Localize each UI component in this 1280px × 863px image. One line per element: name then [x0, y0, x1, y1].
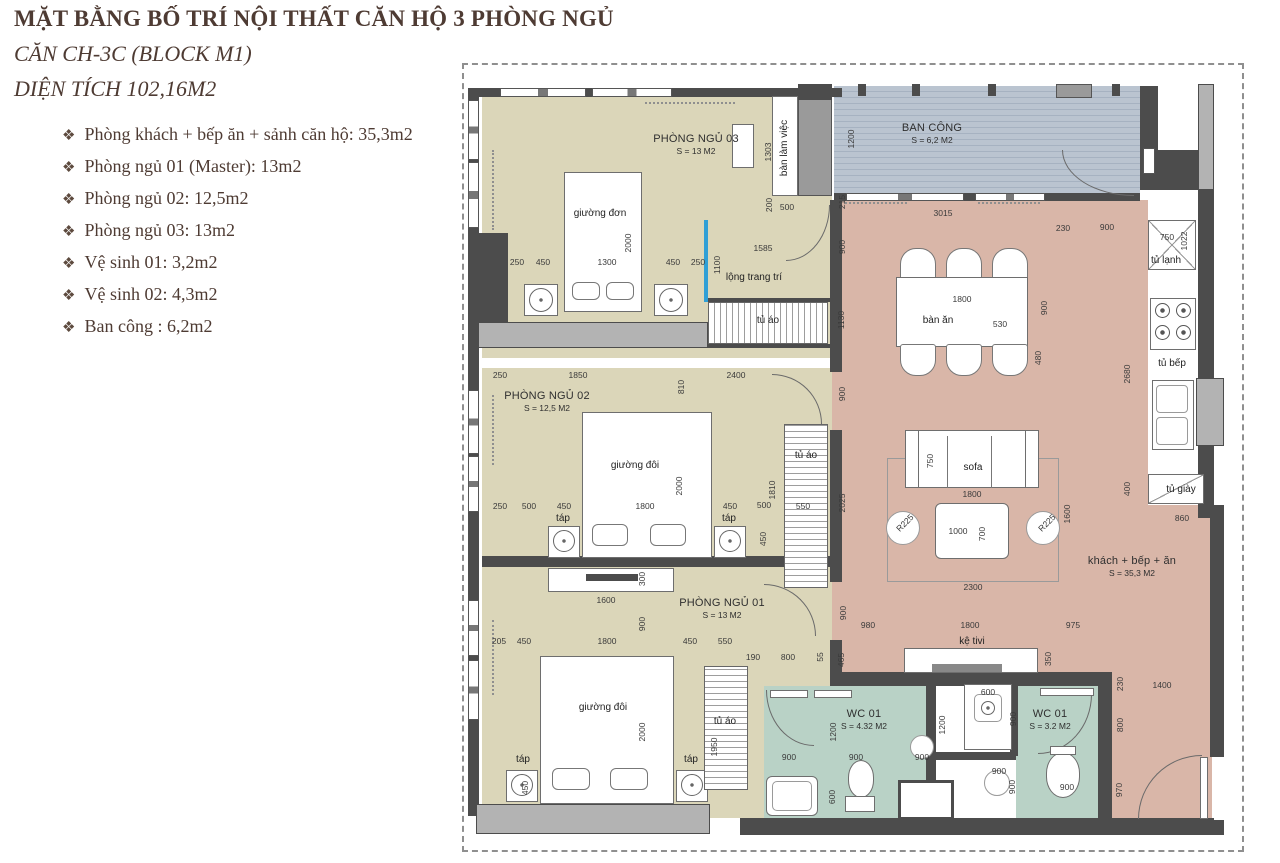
dimension-label: 250 [510, 258, 524, 267]
dimension-label: 900 [839, 606, 848, 620]
pillow [592, 524, 628, 546]
dimension-label: 450 [723, 502, 737, 511]
dimension-label: 1130 [837, 311, 846, 329]
wall-slab [476, 804, 710, 834]
furniture-label: giường đôi [611, 461, 659, 471]
furniture-label: táp [516, 755, 530, 765]
dimension-label: 2000 [624, 234, 633, 253]
coffee-table [935, 503, 1009, 559]
dimension-label: 480 [1034, 351, 1043, 365]
dimension-label: 900 [992, 767, 1006, 776]
sofa-arm [1025, 430, 1039, 488]
shower-tray-inner [772, 781, 812, 811]
pillow [610, 768, 648, 790]
shaft-box [898, 780, 954, 820]
dimension-label: 2000 [638, 723, 647, 742]
dimension-label: 450 [521, 781, 530, 795]
dimension-label: 400 [1123, 482, 1132, 496]
railing-mount [858, 84, 866, 96]
railing-block [1056, 84, 1092, 98]
furniture-label: giường đơn [574, 209, 627, 219]
furniture-label: bàn ăn [923, 316, 954, 326]
wall [1098, 686, 1112, 818]
sink-basin [1156, 417, 1188, 445]
toilet-seat [1050, 746, 1076, 755]
dimension-label: 250 [493, 371, 507, 380]
shaft [798, 84, 832, 196]
tv-screen [932, 664, 1002, 672]
dimension-label: 450 [517, 637, 531, 646]
wall [932, 752, 1016, 760]
dimension-label: 205 [492, 637, 506, 646]
furniture-label: táp [556, 514, 570, 524]
dimension-label: 900 [838, 387, 847, 401]
pillow [606, 282, 634, 300]
wall [740, 818, 1214, 835]
wall [830, 200, 842, 372]
furniture-label: bàn làm việc [780, 120, 790, 176]
tv-screen [586, 574, 638, 581]
dimension-label: 975 [1066, 621, 1080, 630]
dimension-label: 1850 [569, 371, 588, 380]
pillow [552, 768, 590, 790]
furniture-label: tủ giày [1166, 485, 1195, 495]
curtain [845, 202, 907, 204]
dimension-label: 1800 [636, 502, 655, 511]
room-label-balcony: BAN CÔNG S = 6,2 M2 [902, 122, 962, 145]
dining-chair [992, 248, 1028, 280]
window [468, 100, 479, 160]
railing-mount [988, 84, 996, 96]
wall [708, 344, 830, 348]
stove-burner [1155, 325, 1170, 340]
toilet-bowl [848, 760, 874, 798]
nightstand-decor [719, 530, 741, 552]
dimension-label: 200 [765, 198, 774, 212]
dimension-label: 230 [1116, 677, 1125, 691]
sliding-door [846, 193, 964, 201]
dining-table [896, 277, 1028, 347]
furniture-label: táp [684, 755, 698, 765]
dimension-label: 190 [746, 653, 760, 662]
dimension-label: 2300 [964, 583, 983, 592]
dimension-label: 900 [849, 753, 863, 762]
dimension-label: 750 [926, 454, 935, 468]
curtain [492, 620, 494, 695]
dining-chair [900, 344, 936, 376]
dimension-label: 1600 [597, 596, 616, 605]
dimension-label: 1200 [847, 130, 856, 149]
pillow [572, 282, 600, 300]
nightstand-decor [681, 774, 703, 796]
entry-door-leaf [1200, 757, 1208, 819]
dimension-label: 450 [536, 258, 550, 267]
dining-chair [946, 248, 982, 280]
dimension-label: 500 [780, 203, 794, 212]
dimension-label: 1400 [1153, 681, 1172, 690]
window [592, 88, 672, 97]
dimension-label: 215 [838, 195, 847, 209]
dimension-label: 250 [493, 502, 507, 511]
window [500, 88, 586, 97]
wall [1198, 190, 1214, 380]
dimension-label: 1585 [754, 244, 773, 253]
dimension-label: 450 [557, 502, 571, 511]
dimension-label: 900 [838, 240, 847, 254]
dimension-label: 1810 [768, 481, 777, 500]
furniture-label: tủ lạnh [1151, 256, 1181, 266]
dimension-label: 1800 [953, 295, 972, 304]
curtain [492, 395, 494, 465]
furniture-label: giường đôi [579, 703, 627, 713]
dimension-label: 800 [781, 653, 795, 662]
dining-chair [900, 248, 936, 280]
dimension-label: 900 [1040, 301, 1049, 315]
furniture-label: lộng trang trí [726, 273, 782, 283]
sofa-cushion-line [991, 436, 992, 488]
floorplan-page: MẶT BẰNG BỐ TRÍ NỘI THẤT CĂN HỘ 3 PHÒNG … [0, 0, 1280, 863]
vanity-faucet [981, 701, 995, 715]
furniture-label: kệ tivi [959, 637, 985, 647]
dimension-label: 350 [1044, 652, 1053, 666]
dimension-label: 1100 [713, 256, 722, 274]
dimension-label: 2680 [1123, 365, 1132, 384]
dimension-label: 810 [677, 380, 686, 394]
dimension-label: 600 [828, 790, 837, 804]
dimension-label: 980 [861, 621, 875, 630]
room-label-wc2: WC 01 S = 3.2 M2 [1029, 708, 1070, 731]
dimension-label: 2400 [727, 371, 746, 380]
dimension-label: 1600 [1063, 505, 1072, 524]
furniture-label: tủ áo [714, 717, 736, 727]
room-label-bedroom1: PHÒNG NGỦ 01 S = 13 M2 [679, 597, 765, 620]
window [468, 390, 479, 454]
room-label-living: khách + bếp + ăn S = 35,3 M2 [1088, 555, 1176, 578]
sofa-cushion-line [947, 436, 948, 488]
dimension-label: 900 [915, 753, 929, 762]
dimension-label: 1000 [949, 527, 968, 536]
stove-burner [1176, 303, 1191, 318]
floor-plan: PHÒNG NGỦ 03 S = 13 M2 BAN CÔNG S = 6,2 … [0, 0, 1280, 863]
dimension-label: 250 [691, 258, 705, 267]
dimension-label: 550 [796, 502, 810, 511]
dimension-label: 860 [1175, 514, 1189, 523]
sink-basin [1156, 385, 1188, 413]
wall-slab [1196, 378, 1224, 446]
dimension-label: 3015 [934, 209, 953, 218]
towel-rail [1040, 688, 1094, 696]
dimension-label: 530 [993, 320, 1007, 329]
furniture-label: tủ bếp [1158, 359, 1186, 369]
dimension-label: 55 [816, 652, 825, 661]
dimension-label: 900 [1100, 223, 1114, 232]
room-label-bedroom2: PHÒNG NGỦ 02 S = 12,5 M2 [504, 390, 590, 413]
dimension-label: 2000 [675, 477, 684, 496]
stove-burner [1176, 325, 1191, 340]
dimension-label: 700 [978, 527, 987, 541]
wardrobe-bedroom1 [704, 666, 748, 790]
dimension-label: 550 [718, 637, 732, 646]
furniture-label: sofa [964, 463, 983, 473]
dimension-label: 1022 [1180, 232, 1189, 251]
dimension-label: 600 [981, 688, 995, 697]
room-label-wc1: WC 01 S = 4.32 M2 [841, 708, 887, 731]
stove-burner [1155, 303, 1170, 318]
dimension-label: 900 [1008, 780, 1017, 794]
dimension-label: 900 [782, 753, 796, 762]
wall-slab [478, 322, 708, 348]
furniture-label: tủ áo [795, 451, 817, 461]
dimension-label: 800 [1116, 718, 1125, 732]
sliding-door [975, 193, 1045, 201]
dimension-label: 450 [683, 637, 697, 646]
dimension-label: 750 [1160, 233, 1174, 242]
wall [1210, 505, 1224, 757]
curtain [492, 150, 494, 230]
wall [1140, 86, 1158, 190]
curtain [978, 202, 1040, 204]
wall-notch [1143, 148, 1155, 174]
dimension-label: 1800 [963, 490, 982, 499]
dimension-label: 230 [1056, 224, 1070, 233]
furniture-label: tủ áo [757, 316, 779, 326]
dimension-label: 450 [666, 258, 680, 267]
dimension-label: 450 [759, 532, 768, 546]
dimension-label: 900 [1009, 712, 1018, 726]
dimension-label: 1303 [764, 143, 773, 162]
dimension-label: 900 [1060, 783, 1074, 792]
room-label-bedroom3: PHÒNG NGỦ 03 S = 13 M2 [653, 133, 739, 156]
wall-column [476, 233, 508, 323]
pillow [650, 524, 686, 546]
wall-slab [1198, 84, 1214, 190]
dimension-label: 1800 [961, 621, 980, 630]
dimension-label: 500 [757, 501, 771, 510]
dimension-label: 1200 [829, 723, 838, 742]
dimension-label: 1300 [598, 258, 617, 267]
nightstand-decor [659, 288, 683, 312]
wall-column [1158, 150, 1200, 190]
window [468, 162, 479, 228]
dimension-label: 1800 [598, 637, 617, 646]
window [468, 660, 479, 720]
sofa-arm [905, 430, 919, 488]
toilet-tank [845, 796, 875, 812]
wall [798, 84, 832, 100]
railing-mount [1112, 84, 1120, 96]
furniture-label: táp [722, 514, 736, 524]
dimension-label: 465 [837, 653, 846, 667]
nightstand-decor [553, 530, 575, 552]
dimension-label: 900 [638, 617, 647, 631]
dimension-label: 970 [1115, 783, 1124, 797]
curtain [645, 102, 735, 104]
dimension-label: 300 [638, 572, 647, 586]
window [468, 456, 479, 512]
dimension-label: 2025 [838, 494, 847, 513]
dining-chair [946, 344, 982, 376]
wc-shelf [770, 690, 808, 698]
window [468, 600, 479, 656]
dimension-label: 1950 [710, 738, 719, 757]
nightstand-decor [529, 288, 553, 312]
dining-chair [992, 344, 1028, 376]
railing-mount [912, 84, 920, 96]
wc-shelf [814, 690, 852, 698]
dimension-label: 1200 [938, 716, 947, 735]
dimension-label: 500 [522, 502, 536, 511]
